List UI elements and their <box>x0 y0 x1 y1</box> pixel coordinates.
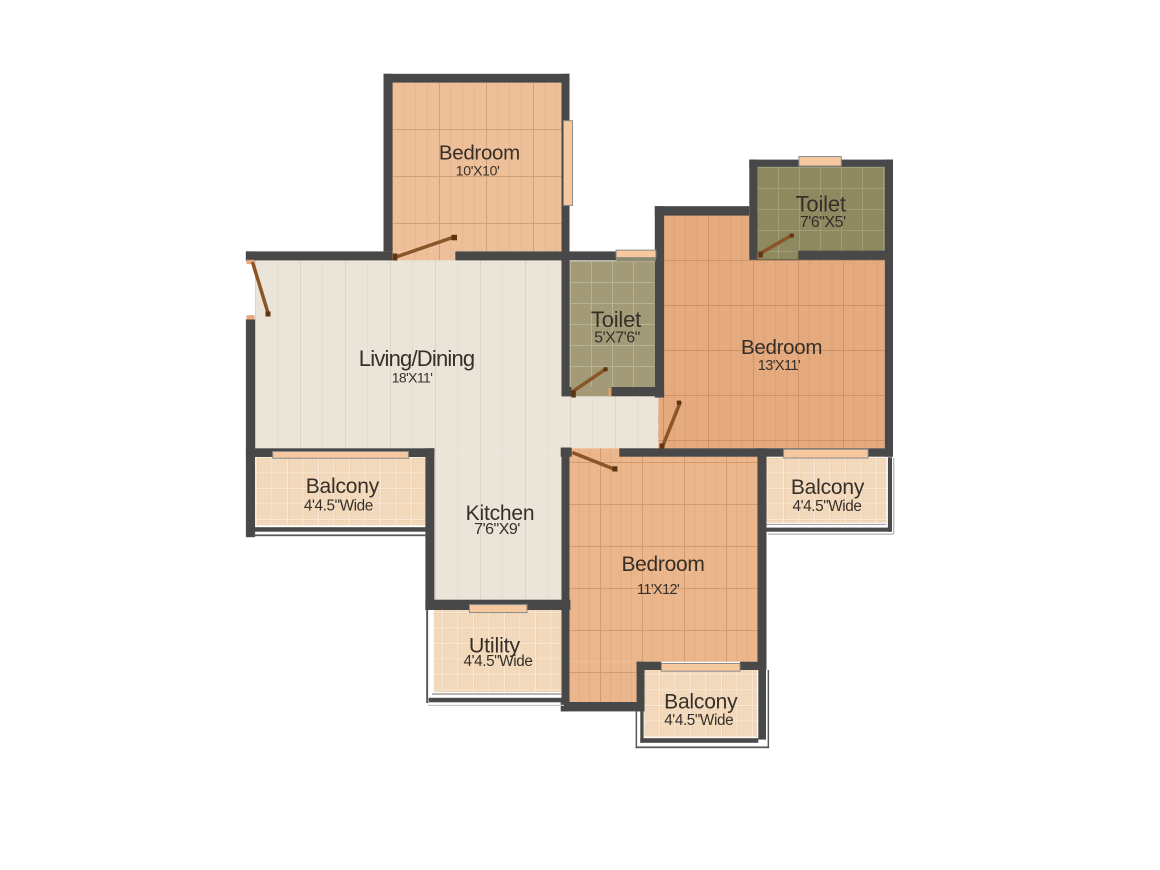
svg-text:Balcony: Balcony <box>306 475 380 498</box>
svg-text:13'X11': 13'X11' <box>758 358 801 374</box>
svg-text:4'4.5"Wide: 4'4.5"Wide <box>793 498 862 515</box>
svg-text:4'4.5"Wide: 4'4.5"Wide <box>464 653 533 670</box>
svg-text:Bedroom: Bedroom <box>621 553 704 576</box>
svg-text:11'X12': 11'X12' <box>637 582 680 598</box>
svg-text:18'X11': 18'X11' <box>392 370 433 386</box>
svg-text:5'X7'6": 5'X7'6" <box>594 330 640 347</box>
svg-text:4'4.5"Wide: 4'4.5"Wide <box>664 712 733 729</box>
svg-text:Balcony: Balcony <box>791 476 865 499</box>
svg-text:Bedroom: Bedroom <box>439 142 520 165</box>
svg-text:Toilet: Toilet <box>591 307 641 332</box>
svg-text:10'X10': 10'X10' <box>456 163 500 179</box>
svg-text:Bedroom: Bedroom <box>741 336 822 359</box>
svg-text:4'4.5"Wide: 4'4.5"Wide <box>304 497 373 514</box>
svg-text:7'6"X9': 7'6"X9' <box>474 521 520 538</box>
svg-text:7'6"X5': 7'6"X5' <box>800 214 846 231</box>
svg-text:Balcony: Balcony <box>664 690 738 713</box>
svg-text:Toilet: Toilet <box>796 191 846 216</box>
svg-text:Living/Dining: Living/Dining <box>359 346 475 371</box>
